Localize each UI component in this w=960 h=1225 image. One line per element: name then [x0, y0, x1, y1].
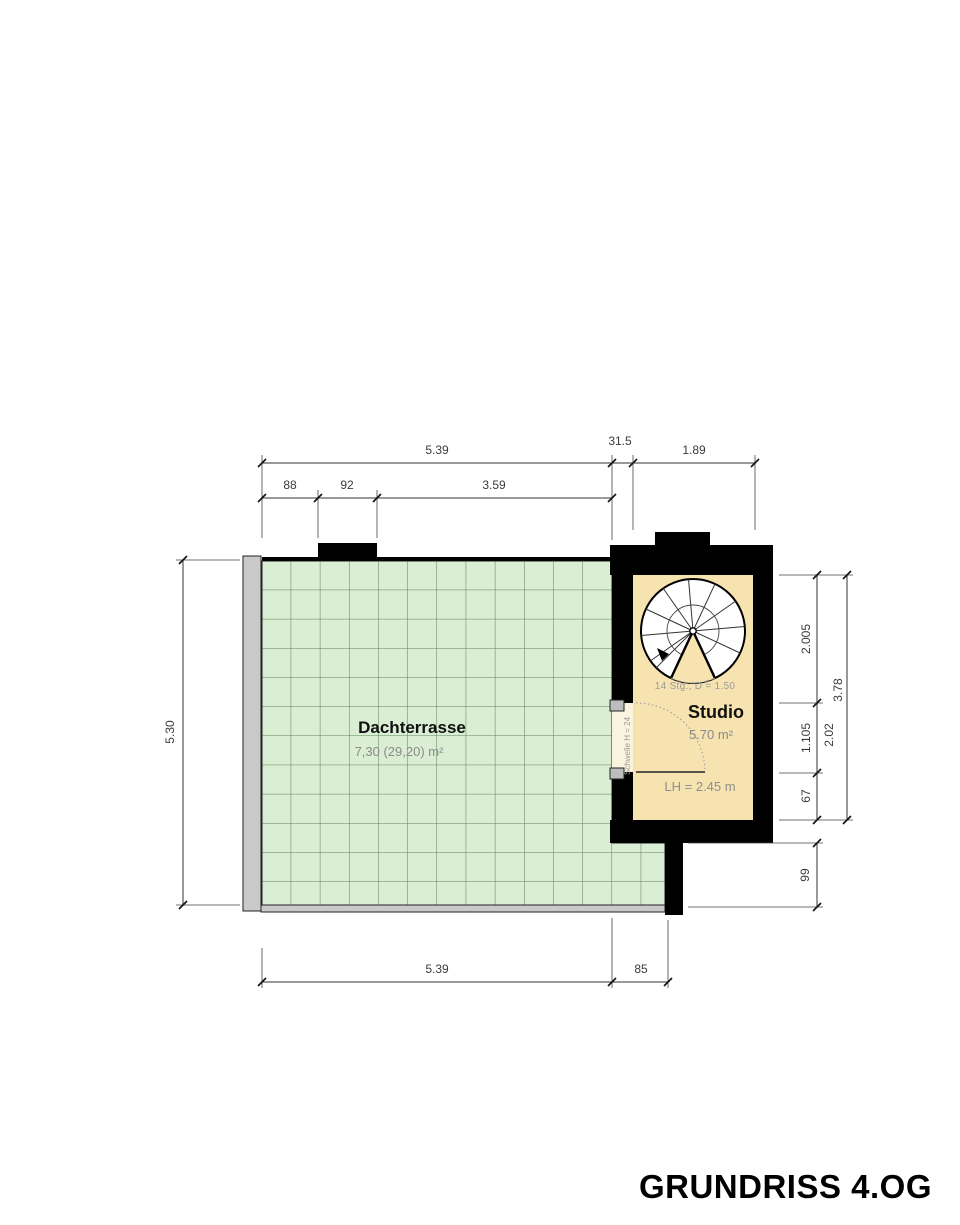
dim-right-inner: 2.02 — [822, 705, 836, 765]
dim-bottom-extension: 85 — [611, 962, 671, 976]
wall-studio-right — [753, 545, 773, 843]
wall-pier-top — [318, 543, 377, 561]
dim-right-seg1: 2.005 — [799, 609, 813, 669]
wall-studio-left-upper — [612, 545, 633, 703]
wall-studio-bottom — [610, 820, 773, 843]
wall-studio-top — [610, 545, 773, 575]
dim-top-seg2: 92 — [317, 478, 377, 492]
floor-plan-page: 5.39 31.5 1.89 88 92 3.59 5.30 2.005 3.7… — [0, 0, 960, 1225]
page-title: GRUNDRISS 4.OG — [500, 1168, 932, 1206]
railing-left — [243, 556, 261, 911]
railing-bottom — [261, 905, 665, 912]
stair-center-post — [690, 628, 696, 634]
terrace-name-label: Dachterrasse — [312, 721, 512, 735]
wall-terrace-top — [262, 557, 612, 561]
spiral-staircase — [641, 579, 745, 683]
terrace-area-label: 7,30 (29,20) m² — [299, 745, 499, 759]
floor-plan-drawing — [0, 0, 960, 1225]
dim-top-wall: 31.5 — [590, 434, 650, 448]
door-threshold-label: Schwelle H = 24 — [621, 701, 635, 791]
dim-right-seg3: 67 — [799, 766, 813, 826]
dim-right-seg2: 1.105 — [799, 708, 813, 768]
dim-top-seg3: 3.59 — [464, 478, 524, 492]
studio-name-label: Studio — [646, 705, 786, 719]
dim-top-total: 5.39 — [397, 443, 477, 457]
dim-right-lower: 99 — [798, 845, 812, 905]
wall-studio-chimney — [655, 532, 710, 545]
dim-top-seg1: 88 — [260, 478, 320, 492]
dim-left-depth: 5.30 — [163, 702, 177, 762]
studio-area-label: 5.70 m² — [641, 728, 781, 742]
studio-clear-height-label: LH = 2.45 m — [630, 780, 770, 794]
dim-top-studio-width: 1.89 — [664, 443, 724, 457]
staircase-note-label: 14 Stg., D = 1.50 — [633, 680, 757, 694]
dim-bottom-total: 5.39 — [397, 962, 477, 976]
wall-lower-strip — [665, 843, 683, 915]
